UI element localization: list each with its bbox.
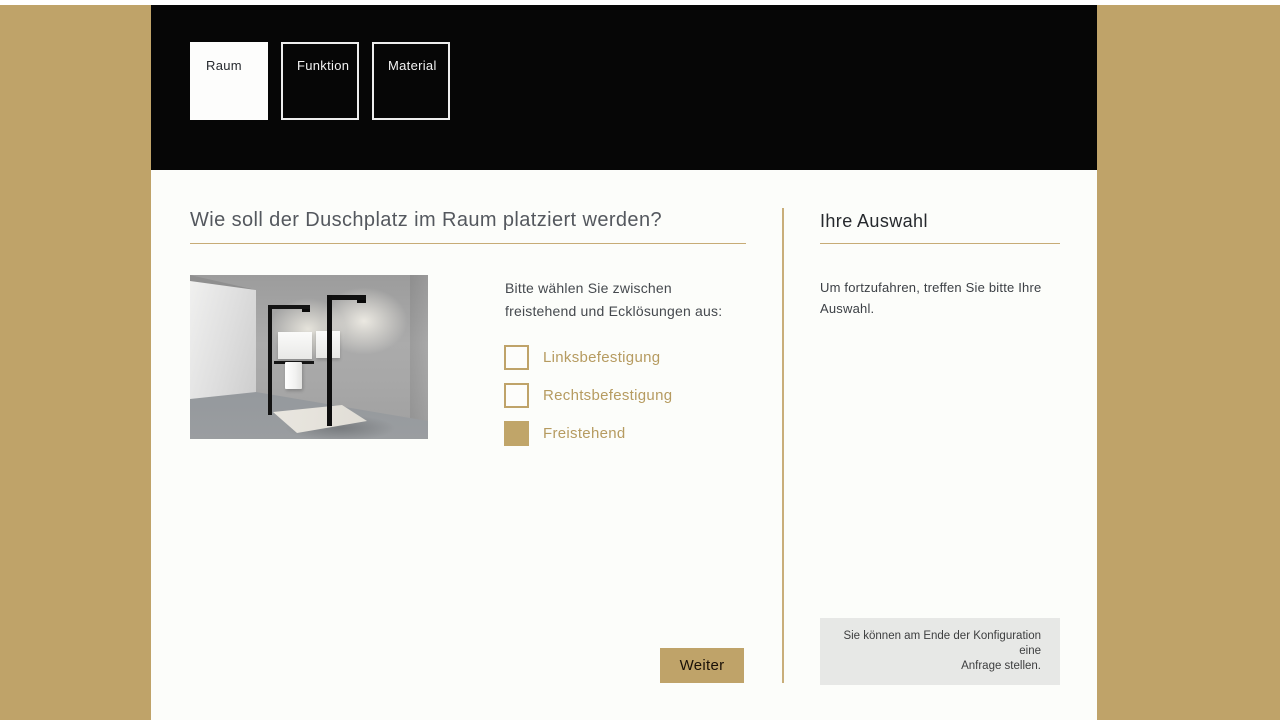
tab-raum[interactable]: Raum xyxy=(190,42,268,120)
header: Raum Funktion Material xyxy=(151,5,1097,170)
selection-panel-title: Ihre Auswahl xyxy=(820,211,928,232)
weiter-button[interactable]: Weiter xyxy=(660,648,744,683)
decor-frame-right-post xyxy=(327,295,332,426)
decor-frame-left-light xyxy=(302,309,310,312)
option-freistehend[interactable]: Freistehend xyxy=(504,420,626,446)
checkbox-linksbefestigung[interactable] xyxy=(504,345,529,370)
tab-funktion[interactable]: Funktion xyxy=(281,42,359,120)
decor-towel xyxy=(285,362,302,389)
option-label[interactable]: Rechtsbefestigung xyxy=(543,387,672,404)
question-underline xyxy=(190,243,746,244)
question-title: Wie soll der Duschplatz im Raum platzier… xyxy=(190,209,662,232)
selection-panel-underline xyxy=(820,243,1060,244)
decor-shelf-left xyxy=(278,332,312,359)
checkbox-freistehend[interactable] xyxy=(504,421,529,446)
decor-left-wall xyxy=(190,275,256,401)
option-label[interactable]: Linksbefestigung xyxy=(543,349,660,366)
option-rechtsbefestigung[interactable]: Rechtsbefestigung xyxy=(504,382,672,408)
configurator-page: Raum Funktion Material Wie soll der Dusc… xyxy=(0,0,1280,720)
selection-panel-note: Sie können am Ende der Konfiguration ein… xyxy=(820,618,1060,685)
option-label[interactable]: Freistehend xyxy=(543,425,626,442)
checkbox-rechtsbefestigung[interactable] xyxy=(504,383,529,408)
selection-panel-hint: Um fortzufahren, treffen Sie bitte Ihre … xyxy=(820,277,1060,319)
shower-preview-image xyxy=(190,275,428,439)
content-column: Raum Funktion Material Wie soll der Dusc… xyxy=(151,5,1097,720)
decor-frame-left-post xyxy=(268,305,272,415)
decor-frame-right-light xyxy=(357,300,366,303)
option-linksbefestigung[interactable]: Linksbefestigung xyxy=(504,344,660,370)
step-tabs: Raum Funktion Material xyxy=(190,42,450,120)
options-intro-text: Bitte wählen Sie zwischen freistehend un… xyxy=(505,277,765,322)
tab-material[interactable]: Material xyxy=(372,42,450,120)
vertical-divider xyxy=(782,208,784,683)
